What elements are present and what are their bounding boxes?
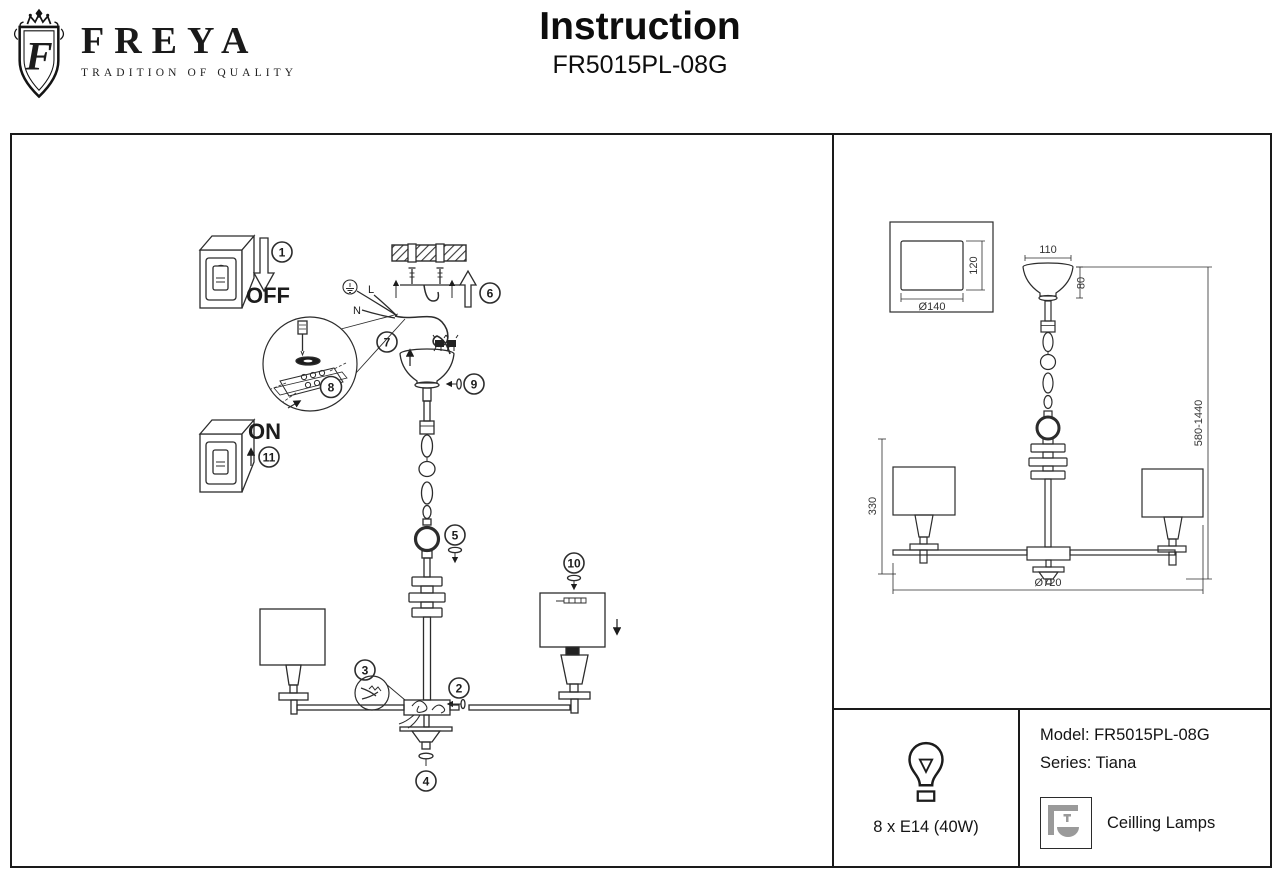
step-4-callout: 4	[416, 771, 436, 791]
product-info-cell: Model: FR5015PL-08G Series: Tiana	[1020, 710, 1270, 866]
arrow-icon	[288, 401, 300, 408]
assembly-panel: 1 OFF ON 1	[10, 133, 834, 868]
dim-body-height: 330	[867, 497, 879, 515]
chain-front-view	[1029, 321, 1067, 547]
dim-diameter: Ø720	[1035, 577, 1062, 589]
dim-height-range: 580-1440	[1193, 400, 1205, 447]
dimension-drawing: 120 Ø140 110	[834, 135, 1270, 708]
lampshade	[1142, 469, 1203, 517]
main-content: 1 OFF ON 1	[10, 133, 1272, 868]
bulb-spec-label: 8 x E14 (40W)	[873, 818, 978, 837]
dim-bracket-depth: 120	[968, 256, 980, 274]
product-model: Model: FR5015PL-08G	[1040, 726, 1270, 745]
svg-text:8: 8	[328, 381, 335, 395]
brand-name: FREYA	[81, 22, 297, 60]
step-2-callout: 2	[449, 678, 469, 698]
brand-tagline: TRADITION OF QUALITY	[81, 67, 297, 79]
freya-shield-icon: F	[10, 6, 68, 102]
svg-text:2: 2	[456, 682, 463, 696]
step-11-callout: 11	[259, 447, 279, 467]
right-arm	[469, 705, 570, 710]
svg-text:3: 3	[362, 664, 369, 678]
step-5-callout: 5	[445, 525, 465, 545]
screw-icon	[447, 379, 461, 389]
hanging-ring	[416, 528, 439, 551]
arrow-up-icon	[460, 271, 476, 307]
screwdriver-icon	[298, 321, 307, 355]
svg-text:6: 6	[487, 287, 494, 301]
bulb-spec-cell: 8 x E14 (40W)	[834, 710, 1020, 866]
svg-text:1: 1	[279, 246, 286, 260]
wall-switch-on	[200, 420, 254, 492]
screw-icon	[419, 753, 433, 766]
svg-text:7: 7	[384, 336, 391, 350]
step-9-callout: 9	[464, 374, 484, 394]
svg-text:5: 5	[452, 529, 459, 543]
ceiling-mount	[392, 244, 466, 301]
screw-icon	[409, 268, 416, 284]
screw-icon	[437, 268, 444, 284]
dim-height-range-group: 580-1440	[1076, 267, 1212, 579]
left-arm	[297, 705, 404, 710]
off-label: OFF	[246, 283, 290, 308]
wire-coil	[412, 701, 427, 712]
svg-text:11: 11	[263, 451, 276, 465]
logo-monogram: F	[24, 33, 52, 78]
canopy-front-view: 110 80	[1023, 244, 1088, 321]
lampshade	[893, 467, 955, 515]
step-8-callout: 8	[321, 377, 342, 398]
hook-icon	[424, 285, 438, 301]
step-10-callout: 10	[564, 553, 584, 573]
svg-text:9: 9	[471, 378, 478, 392]
wire-l-label: L	[368, 284, 374, 296]
arm-socket	[450, 705, 459, 710]
product-series: Series: Tiana	[1040, 754, 1270, 773]
ceiling-lamp-icon	[1040, 797, 1092, 849]
screw-icon	[568, 575, 581, 589]
category-row: Ceilling Lamps	[1040, 797, 1270, 849]
screw-icon	[449, 547, 462, 562]
right-lamp	[540, 593, 605, 713]
left-lamp	[260, 609, 325, 714]
lampshade	[260, 609, 325, 665]
chain	[416, 401, 439, 558]
step-1-callout: 1	[272, 242, 292, 262]
fixture-front-view	[893, 467, 1203, 584]
svg-text:10: 10	[567, 557, 581, 571]
spec-panel: 120 Ø140 110	[832, 133, 1272, 868]
dim-body-height-group: 330	[867, 439, 896, 574]
column-stack	[409, 558, 445, 700]
category-label: Ceilling Lamps	[1107, 814, 1215, 833]
bracket-top-view: 120 Ø140	[890, 222, 993, 313]
assembly-diagram: 1 OFF ON 1	[12, 135, 832, 866]
dim-canopy-height: 80	[1076, 277, 1088, 289]
product-info-table: 8 x E14 (40W) Model: FR5015PL-08G Series…	[834, 708, 1270, 866]
freya-logo: F FREYA TRADITION OF QUALITY	[10, 6, 297, 102]
lampshade	[540, 593, 605, 647]
canopy	[400, 349, 454, 401]
bracket-detail: 8	[263, 314, 405, 411]
svg-text:4: 4	[423, 775, 430, 789]
dim-canopy-width: 110	[1039, 244, 1057, 256]
on-label: ON	[248, 419, 281, 444]
instruction-sheet: F FREYA TRADITION OF QUALITY Instruction…	[0, 0, 1280, 875]
wire-n-label: N	[353, 305, 361, 317]
step-6-callout: 6	[480, 283, 500, 303]
step-7-callout: 7	[377, 332, 397, 352]
bulb-icon	[903, 740, 949, 810]
dim-bracket-diameter: Ø140	[919, 301, 946, 313]
